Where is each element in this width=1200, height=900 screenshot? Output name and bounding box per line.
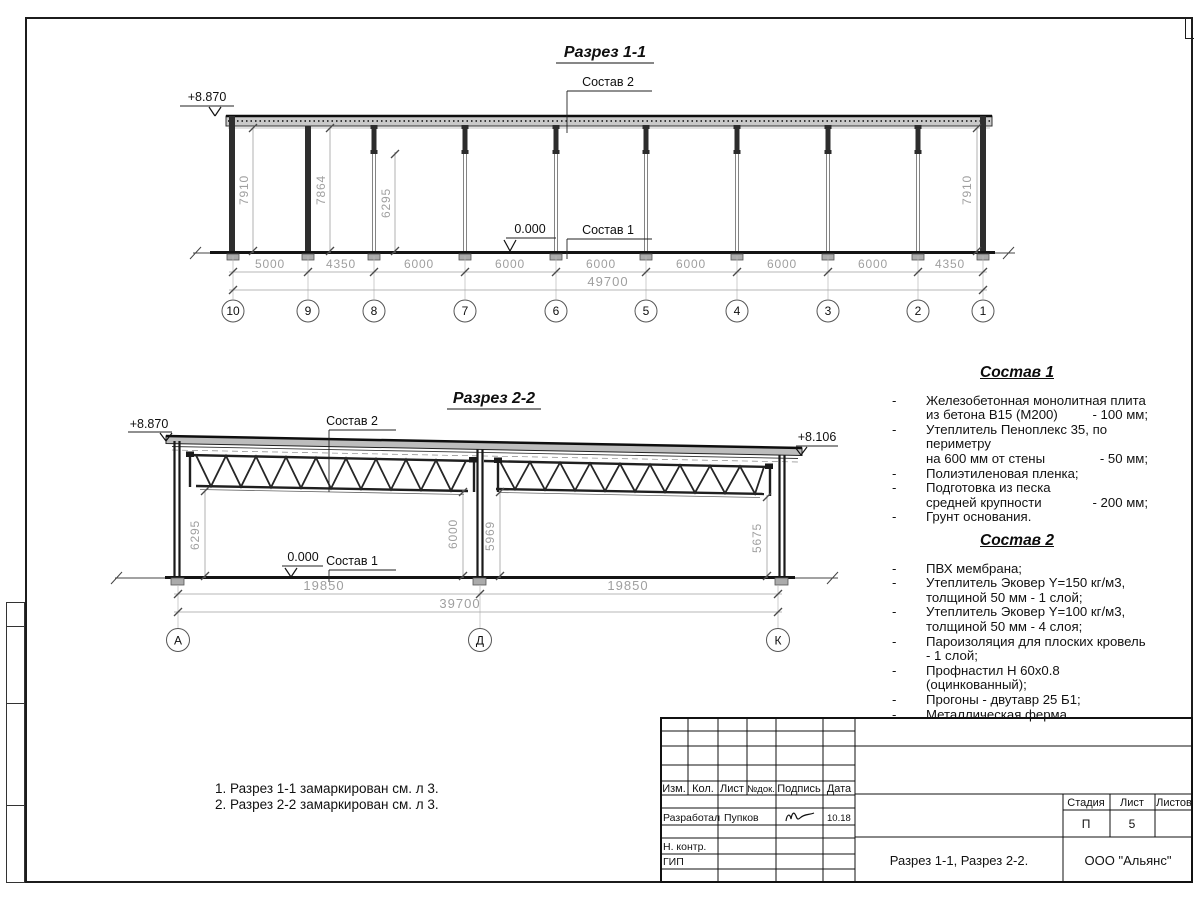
axis-bubbles: 10 9 8 7 6 5 4 3 2 1 (222, 300, 994, 322)
tb-stadia-label: Стадия (1067, 797, 1105, 809)
dim-label: 19850 (607, 578, 648, 593)
item-text: средней крупности (926, 496, 1042, 511)
dim-label: 6000 (495, 257, 525, 271)
signature (786, 813, 814, 821)
dim-label: 6000 (404, 257, 434, 271)
section-2-2-title: Разрез 2-2 (453, 390, 535, 407)
list-dash: - (886, 635, 926, 664)
tb-role-gip: ГИП (663, 856, 684, 868)
list-dash: - (886, 664, 926, 693)
elevation-mark-left: +8.870 (128, 417, 172, 441)
axis-label: 8 (371, 304, 378, 318)
axis-label: 9 (305, 304, 312, 318)
title-block: Изм. Кол. Лист №док. Подпись Дата Разраб… (660, 717, 1193, 883)
list-item: - ПВХ мембрана; (886, 562, 1148, 577)
item-text: Подготовка из песка (926, 481, 1051, 496)
axis-bubbles: А Д К (167, 629, 790, 652)
dim-label: 6000 (858, 257, 888, 271)
axis-label: Д (476, 634, 484, 648)
item-text: толщиной 50 мм - 1 слой; (926, 591, 1082, 606)
item-text: на 600 мм от стены (926, 452, 1045, 467)
tb-header-list: Лист (720, 783, 744, 795)
list-item: - Пароизоляция для плоских кровель - 1 с… (886, 635, 1148, 664)
tb-role-nkontr: Н. контр. (663, 841, 706, 853)
axis-label: К (775, 634, 782, 648)
axis-label: А (174, 634, 182, 648)
column-axis-k (780, 455, 785, 578)
item-text: Прогоны - двутавр 25 Б1; (926, 693, 1081, 708)
interior-columns (371, 125, 922, 252)
drawing-sheet: Разрез 1-1 (0, 0, 1200, 900)
axis-label: 4 (734, 304, 741, 318)
column (462, 125, 469, 252)
list-dash: - (886, 481, 926, 510)
item-text: Утеплитель Эковер Y=100 кг/м3, (926, 605, 1125, 620)
elevation-mark: +8.870 (180, 90, 234, 116)
tb-name-developer: Пупков (724, 812, 759, 824)
item-text: Полиэтиленовая пленка; (926, 467, 1079, 482)
item-text: Утеплитель Пеноплекс 35, по периметру (926, 423, 1148, 452)
list-dash: - (886, 423, 926, 467)
callout-label: Состав 1 (582, 223, 634, 237)
zero-level-mark: 0.000 (504, 222, 556, 251)
item-text: ПВХ мембрана; (926, 562, 1022, 577)
list-item: - Профнастил Н 60х0.8 (оцинкованный); (886, 664, 1148, 693)
tb-header-izm: Изм. (662, 783, 686, 795)
tb-role-razrabotal: Разработал (663, 812, 720, 824)
dim-label: 6000 (676, 257, 706, 271)
list-item: - Железобетонная монолитная плита из бет… (886, 394, 1148, 423)
wall-axis-10 (229, 116, 235, 253)
axis-label: 10 (226, 304, 240, 318)
dim-label: 5000 (255, 257, 285, 271)
list-dash: - (886, 605, 926, 634)
sostav-1-title: Состав 1 (886, 366, 1148, 381)
sostav-2-block: Состав 2 - ПВХ мембрана; - Утеплитель Эк… (886, 534, 1148, 722)
column-axis-a (175, 441, 180, 578)
list-dash: - (886, 467, 926, 482)
list-item: - Утеплитель Эковер Y=150 кг/м3, толщино… (886, 576, 1148, 605)
vertical-dimensions: 6295 6000 5969 5675 (188, 487, 771, 580)
callout-label: Состав 2 (582, 75, 634, 89)
sostav-2-title: Состав 2 (886, 534, 1148, 549)
tb-stadia-value: П (1082, 817, 1091, 831)
item-text: из бетона В15 (М200) (926, 408, 1058, 423)
dim-label: 6000 (446, 519, 460, 549)
list-item: - Подготовка из песка средней крупности-… (886, 481, 1148, 510)
tb-company: ООО "Альянс" (1085, 853, 1172, 868)
item-text: Железобетонная монолитная плита (926, 394, 1146, 409)
dim-label: 5969 (483, 521, 497, 551)
zero-level-value: 0.000 (514, 222, 545, 236)
elevation-value: +8.870 (130, 417, 169, 431)
list-item: - Прогоны - двутавр 25 Б1; (886, 693, 1148, 708)
axis-label: 7 (462, 304, 469, 318)
section-1-1: Разрез 1-1 (180, 44, 1015, 322)
title-block-grid: Изм. Кол. Лист №док. Подпись Дата Разраб… (660, 717, 1193, 883)
list-dash: - (886, 693, 926, 708)
wall-axis-1 (980, 116, 986, 253)
item-text: толщиной 50 мм - 4 слоя; (926, 620, 1082, 635)
zero-level-mark: 0.000 (282, 550, 323, 577)
dim-label: 6000 (586, 257, 616, 271)
elevation-value: +8.870 (188, 90, 227, 104)
sostav-1-block: Состав 1 - Железобетонная монолитная пли… (886, 366, 1148, 525)
list-item: - Грунт основания. (886, 510, 1148, 525)
item-text: Грунт основания. (926, 510, 1031, 525)
note-line: 2. Разрез 2-2 замаркирован см. л 3. (215, 797, 439, 813)
list-item: - Утеплитель Пеноплекс 35, по периметру … (886, 423, 1148, 467)
tb-list-value: 5 (1129, 817, 1136, 831)
column-axis-d (478, 449, 483, 578)
section-2-2: Разрез 2-2 (111, 390, 838, 652)
list-dash: - (886, 576, 926, 605)
dim-label: 7910 (237, 175, 251, 205)
dim-label: 7864 (314, 175, 328, 205)
footings (171, 578, 788, 585)
dim-total-label: 49700 (587, 274, 628, 289)
axis-label: 1 (980, 304, 987, 318)
list-dash: - (886, 562, 926, 577)
axis-label: 3 (825, 304, 832, 318)
wall-axis-9 (305, 126, 311, 253)
tb-list-label: Лист (1120, 797, 1144, 809)
dim-label: 4350 (935, 257, 965, 271)
dim-label: 6295 (379, 188, 393, 218)
column (734, 125, 741, 252)
column (371, 125, 378, 252)
dim-label: 6295 (188, 520, 202, 550)
item-text: Профнастил Н 60х0.8 (оцинкованный); (926, 664, 1148, 693)
list-item: - Полиэтиленовая пленка; (886, 467, 1148, 482)
axis-label: 6 (553, 304, 560, 318)
tb-header-data: Дата (827, 783, 852, 795)
list-dash: - (886, 510, 926, 525)
tb-header-kol: Кол. (692, 783, 714, 795)
zero-level-value: 0.000 (287, 550, 318, 564)
tb-listov-label: Листов (1156, 797, 1192, 809)
column (825, 125, 832, 252)
section-1-1-title: Разрез 1-1 (564, 44, 646, 61)
item-value: - 50 мм; (1100, 452, 1148, 467)
note-line: 1. Разрез 1-1 замаркирован см. л 3. (215, 781, 439, 797)
callout-label: Состав 2 (326, 414, 378, 428)
dim-label: 5675 (750, 523, 764, 553)
item-value: - 200 мм; (1092, 496, 1148, 511)
tb-date: 10.18 (827, 813, 851, 824)
column (553, 125, 560, 252)
axis-label: 2 (915, 304, 922, 318)
steel-truss-right (484, 458, 773, 498)
axis-label: 5 (643, 304, 650, 318)
item-text: Утеплитель Эковер Y=150 кг/м3, (926, 576, 1125, 591)
steel-truss-left (186, 452, 477, 495)
tb-header-podpis: Подпись (777, 783, 821, 795)
dim-label: 19850 (303, 578, 344, 593)
list-dash: - (886, 394, 926, 423)
list-item: - Утеплитель Эковер Y=100 кг/м3, толщино… (886, 605, 1148, 634)
notes-block: 1. Разрез 1-1 замаркирован см. л 3. 2. Р… (215, 781, 439, 812)
item-value: - 100 мм; (1092, 408, 1148, 423)
elevation-value: +8.106 (798, 430, 837, 444)
dim-label: 6000 (767, 257, 797, 271)
dim-total-label: 39700 (439, 596, 480, 611)
tb-doc-title: Разрез 1-1, Разрез 2-2. (890, 853, 1028, 868)
callout-label: Состав 1 (326, 554, 378, 568)
horizontal-dimensions: 5000 4350 6000 6000 6000 6000 6000 6000 … (229, 256, 987, 299)
item-text: Пароизоляция для плоских кровель - 1 сло… (926, 635, 1148, 664)
dim-label: 7910 (960, 175, 974, 205)
column (915, 125, 922, 252)
horizontal-dimensions: 19850 19850 39700 (174, 578, 782, 628)
column (643, 125, 650, 252)
tb-header-ndok: №док. (747, 784, 775, 795)
dim-label: 4350 (326, 257, 356, 271)
